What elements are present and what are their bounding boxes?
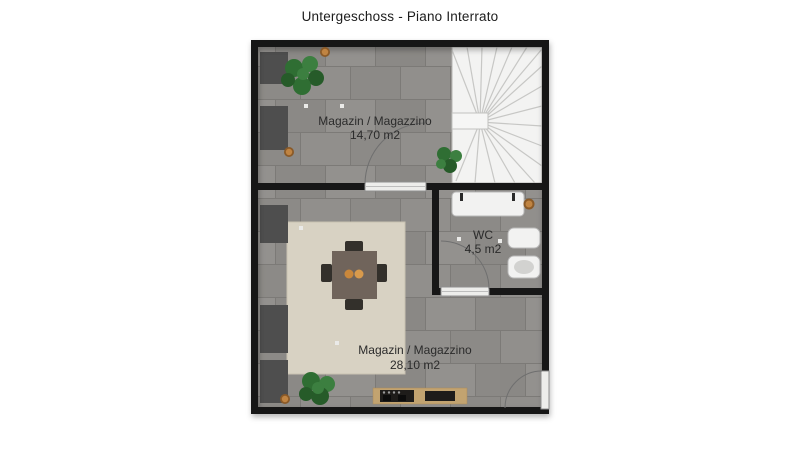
- dining-table: [332, 251, 377, 299]
- burner: [383, 395, 391, 401]
- staircase: [452, 47, 542, 183]
- sink-tap-right: [512, 193, 515, 201]
- sink-tap-left: [460, 193, 463, 201]
- wc-left-wall: [432, 183, 439, 295]
- burner: [398, 395, 406, 401]
- stove-knob: [393, 391, 395, 393]
- oven-display: [425, 391, 455, 401]
- room-label-storage-lower-area: 28,10 m2: [390, 358, 440, 372]
- room-label-storage-upper-area: 14,70 m2: [350, 128, 400, 142]
- fruit-bowl-1: [345, 270, 354, 279]
- room-label-storage-lower-name: Magazin / Magazzino: [358, 343, 472, 357]
- stair-landing: [452, 113, 488, 129]
- chair-right: [376, 264, 387, 282]
- stove-knob: [388, 391, 390, 393]
- fruit-bowl-2: [355, 270, 364, 279]
- stove-knob: [383, 391, 385, 393]
- stove-knob: [398, 391, 400, 393]
- shelf-2: [260, 106, 288, 150]
- chair-top: [345, 241, 363, 252]
- floor-plan-page: Untergeschoss - Piano Interrato: [0, 0, 800, 450]
- wc-toilet-bowl: [514, 260, 534, 274]
- shelf-3: [260, 205, 288, 243]
- kitchen-counter: [373, 388, 467, 404]
- room-label-wc-area: 4,5 m2: [465, 242, 502, 256]
- shelf-4: [260, 305, 288, 353]
- wc-bidet: [508, 228, 540, 248]
- door-threshold-entry: [541, 371, 549, 409]
- chair-bottom: [345, 299, 363, 310]
- chair-left: [321, 264, 332, 282]
- floor-plan: Magazin / Magazzino 14,70 m2 WC 4,5 m2 M…: [251, 40, 549, 414]
- floor-plan-canvas: Magazin / Magazzino 14,70 m2 WC 4,5 m2 M…: [0, 0, 800, 450]
- room-label-wc-name: WC: [473, 228, 493, 242]
- room-label-storage-upper-name: Magazin / Magazzino: [318, 114, 432, 128]
